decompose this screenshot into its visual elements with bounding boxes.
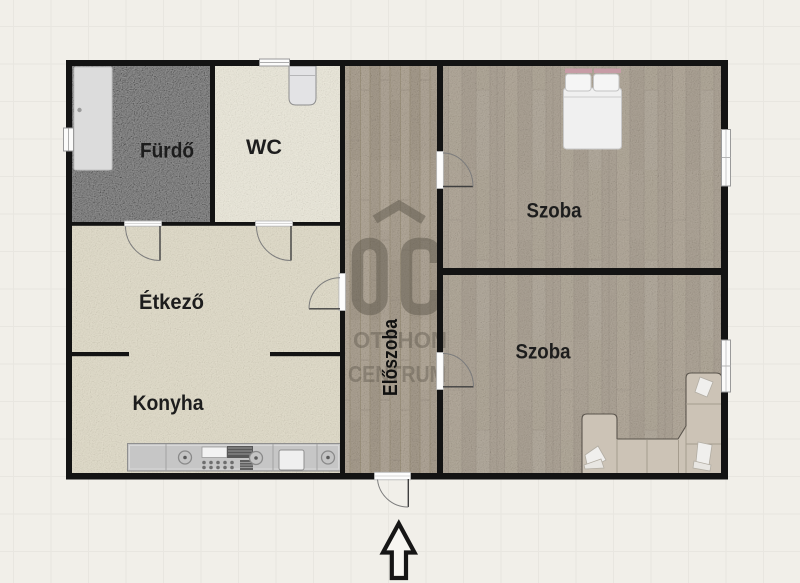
svg-text:Konyha: Konyha: [133, 391, 205, 415]
svg-text:WC: WC: [246, 135, 282, 159]
svg-text:Előszoba: Előszoba: [379, 318, 402, 396]
svg-text:Szoba: Szoba: [527, 199, 583, 223]
svg-text:Fürdő: Fürdő: [140, 139, 194, 163]
svg-text:Szoba: Szoba: [516, 340, 572, 364]
svg-text:Étkező: Étkező: [139, 289, 204, 314]
